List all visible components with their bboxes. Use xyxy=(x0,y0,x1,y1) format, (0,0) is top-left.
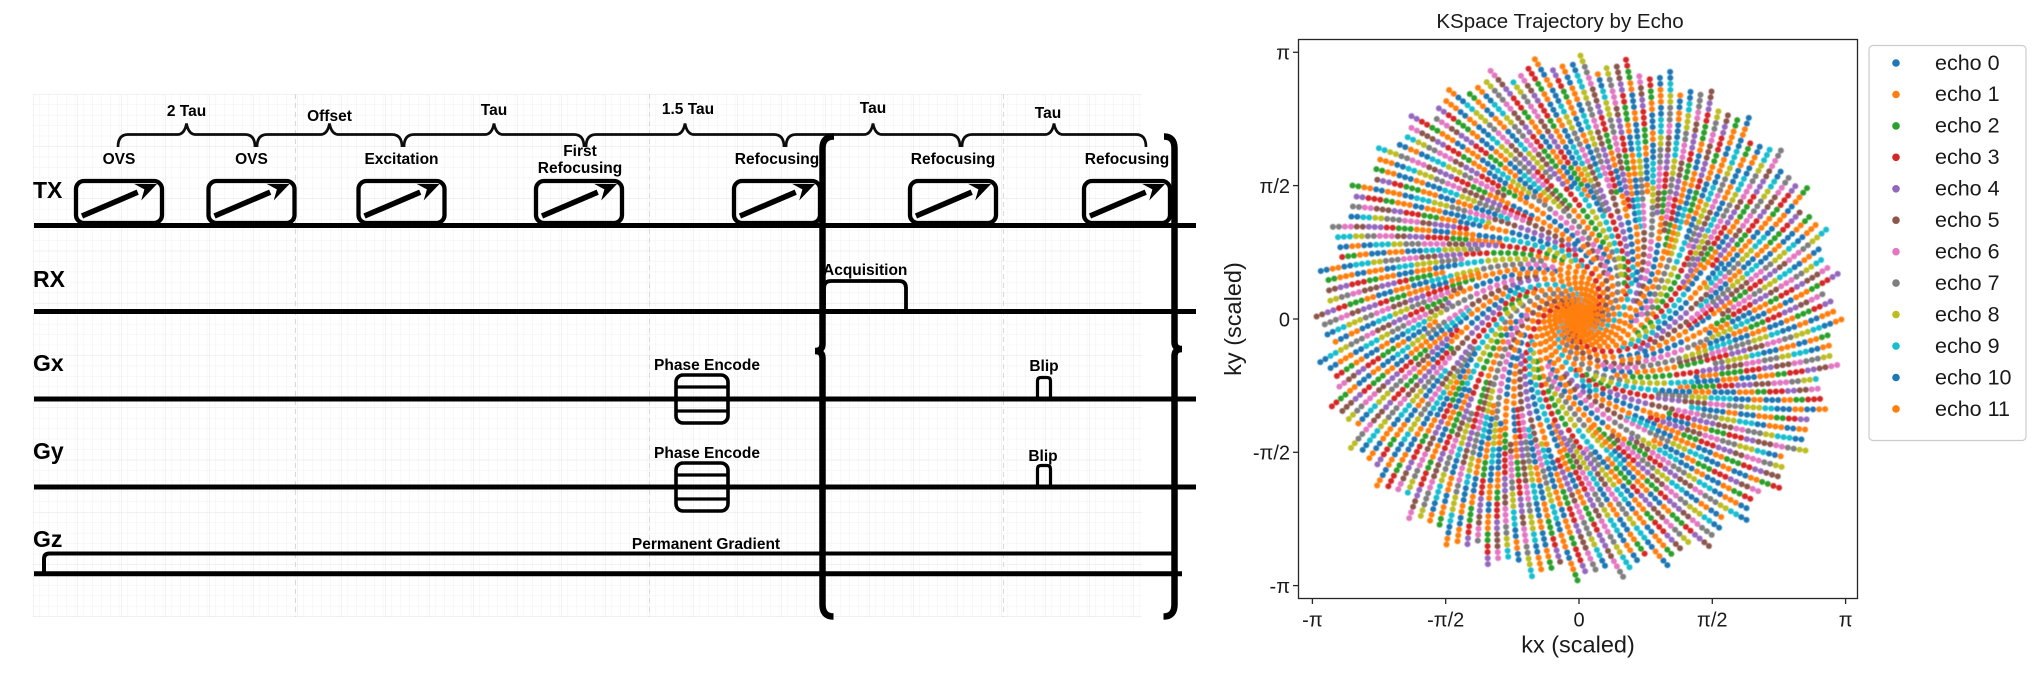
svg-text:echo 0: echo 0 xyxy=(1935,51,2000,75)
svg-text:KSpace Trajectory by Echo: KSpace Trajectory by Echo xyxy=(1436,10,1683,33)
svg-text:1.5 Tau: 1.5 Tau xyxy=(662,101,714,118)
svg-text:echo 4: echo 4 xyxy=(1935,177,2000,201)
svg-text:First: First xyxy=(563,143,597,160)
svg-text:OVS: OVS xyxy=(103,151,136,168)
svg-text:Phase Encode: Phase Encode xyxy=(654,445,760,462)
svg-text:π/2: π/2 xyxy=(1697,610,1727,632)
svg-text:echo 7: echo 7 xyxy=(1935,271,2000,295)
svg-text:Acquisition: Acquisition xyxy=(823,262,907,279)
svg-text:ky (scaled): ky (scaled) xyxy=(1220,262,1246,376)
svg-text:Refocusing: Refocusing xyxy=(735,151,819,168)
svg-text:-π/2: -π/2 xyxy=(1427,610,1464,632)
svg-text:echo 5: echo 5 xyxy=(1935,208,2000,232)
svg-text:Gy: Gy xyxy=(33,438,64,464)
svg-text:0: 0 xyxy=(1573,610,1584,632)
svg-text:π: π xyxy=(1276,43,1290,65)
svg-text:echo 11: echo 11 xyxy=(1935,397,2010,421)
svg-text:Refocusing: Refocusing xyxy=(538,160,622,177)
svg-text:Permanent Gradient: Permanent Gradient xyxy=(632,536,780,553)
svg-text:0: 0 xyxy=(1279,309,1290,331)
svg-text:2 Tau: 2 Tau xyxy=(167,103,206,120)
svg-text:echo 10: echo 10 xyxy=(1935,365,2012,389)
svg-text:Blip: Blip xyxy=(1028,448,1057,465)
svg-text:OVS: OVS xyxy=(235,151,268,168)
svg-text:Tau: Tau xyxy=(481,102,507,119)
svg-text:echo 3: echo 3 xyxy=(1935,145,2000,169)
svg-text:echo 8: echo 8 xyxy=(1935,302,2000,326)
svg-text:echo 6: echo 6 xyxy=(1935,240,2000,264)
svg-text:Gz: Gz xyxy=(33,526,62,552)
svg-text:Tau: Tau xyxy=(1035,105,1061,122)
svg-text:echo 9: echo 9 xyxy=(1935,334,2000,358)
svg-text:kx (scaled): kx (scaled) xyxy=(1521,632,1635,658)
svg-text:π/2: π/2 xyxy=(1260,176,1290,198)
svg-text:RX: RX xyxy=(33,266,66,292)
svg-text:Excitation: Excitation xyxy=(364,151,438,168)
svg-text:π: π xyxy=(1839,610,1853,632)
svg-text:Refocusing: Refocusing xyxy=(911,151,995,168)
svg-text:Refocusing: Refocusing xyxy=(1085,151,1169,168)
svg-text:echo 2: echo 2 xyxy=(1935,114,2000,138)
svg-text:Tau: Tau xyxy=(860,100,886,117)
svg-text:-π/2: -π/2 xyxy=(1253,443,1290,465)
svg-text:-π: -π xyxy=(1302,610,1322,632)
svg-text:-π: -π xyxy=(1270,576,1290,598)
svg-text:echo 1: echo 1 xyxy=(1935,82,2000,106)
svg-text:TX: TX xyxy=(33,177,63,203)
svg-text:Gx: Gx xyxy=(33,350,64,376)
svg-text:Offset: Offset xyxy=(307,108,352,125)
svg-text:Phase Encode: Phase Encode xyxy=(654,357,760,374)
svg-text:Blip: Blip xyxy=(1029,358,1058,375)
